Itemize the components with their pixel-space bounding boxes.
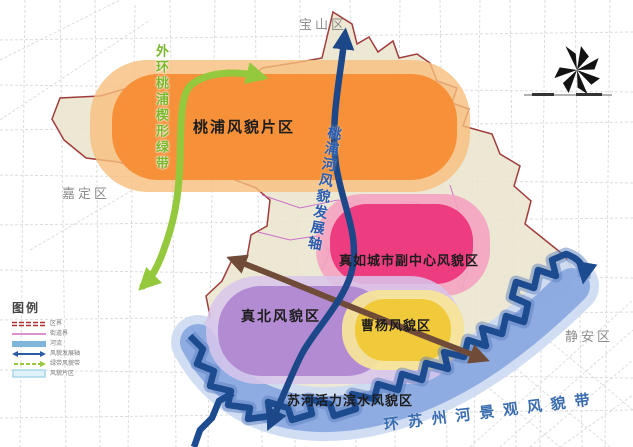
legend-item-label: 风貌片区	[50, 371, 74, 377]
legend-item-river: 河流	[12, 339, 112, 348]
legend-item-label: 区界	[50, 321, 62, 327]
street-boundary-swatch	[12, 330, 46, 338]
legend-item-green-belt: 绿带风貌带	[12, 359, 112, 368]
legend-item-street-boundary: 街道界	[12, 329, 112, 338]
legend-item-label: 风貌发展轴	[50, 351, 80, 357]
zone-label-zhenbei: 真北风貌区	[241, 306, 321, 326]
region-label-jingan: 静安区	[565, 326, 613, 345]
style-zone-swatch	[12, 369, 46, 378]
river-swatch	[12, 340, 46, 348]
legend-title: 图例	[12, 299, 112, 316]
legend: 图例 区界 街道界 河流 风貌发展轴 绿带风貌带	[12, 299, 112, 379]
zone-label-zhenru: 真如城市副中心风貌区	[339, 250, 479, 269]
region-label-jiading: 嘉定区	[62, 183, 110, 202]
map-canvas: 宝山区 嘉定区 静安区 桃浦风貌片区 真如城市副中心风貌区 真北风貌区 曹杨风貌…	[0, 0, 633, 447]
axis-label-green-belt: 外环桃浦楔形绿带	[152, 44, 171, 172]
scale-bar	[524, 93, 612, 96]
legend-item-label: 河流	[50, 341, 62, 347]
zone-label-suhe: 苏河活力滨水风貌区	[287, 390, 413, 409]
green-belt-swatch	[12, 360, 46, 368]
legend-item-development-axis: 风貌发展轴	[12, 349, 112, 358]
district-boundary-swatch	[12, 320, 46, 328]
zone-label-taopu: 桃浦风貌片区	[193, 116, 295, 137]
legend-item-label: 街道界	[50, 331, 68, 337]
legend-item-style-zone: 风貌片区	[12, 369, 112, 378]
zone-label-caoyang: 曹杨风貌区	[361, 315, 431, 334]
legend-item-label: 绿带风貌带	[50, 361, 80, 367]
development-axis-swatch	[12, 350, 46, 358]
legend-item-district-boundary: 区界	[12, 319, 112, 328]
region-label-baoshan: 宝山区	[299, 14, 347, 33]
